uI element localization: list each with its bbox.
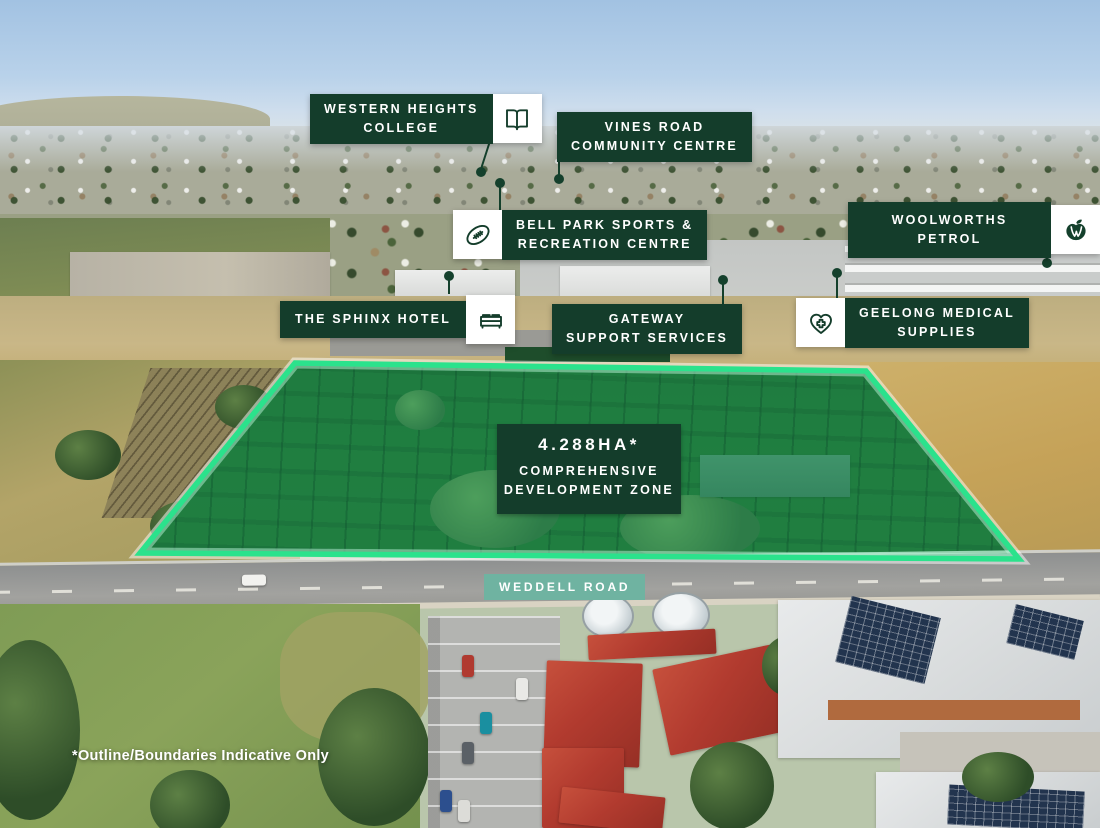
car <box>462 742 474 764</box>
callout-label: WOOLWORTHS PETROL <box>848 202 1051 258</box>
callout-bell-park-sports-recreation-centre: BELL PARK SPORTS & RECREATION CENTRE <box>453 210 707 260</box>
callout-vines-road-community-centre: VINES ROAD COMMUNITY CENTRE <box>557 112 752 162</box>
tree <box>962 752 1034 802</box>
water-tank <box>582 594 634 638</box>
callout-label: GATEWAY SUPPORT SERVICES <box>552 304 742 354</box>
site-area-label: 4.288HA* COMPREHENSIVE DEVELOPMENT ZONE <box>497 424 681 514</box>
callout-western-heights-college: WESTERN HEIGHTS COLLEGE <box>310 94 542 144</box>
car <box>516 678 528 700</box>
site-area-value: 4.288HA* <box>503 435 675 455</box>
tree <box>318 688 430 826</box>
tree <box>690 742 774 828</box>
site-shed-roof <box>700 455 850 497</box>
football-icon <box>453 210 502 259</box>
aerial-property-marketing-image: WESTERN HEIGHTS COLLEGE VINES ROAD COMMU… <box>0 0 1100 828</box>
callout-label: THE SPHINX HOTEL <box>280 301 466 338</box>
callout-woolworths-petrol: WOOLWORTHS PETROL <box>848 202 1100 258</box>
callout-label: VINES ROAD COMMUNITY CENTRE <box>557 112 752 162</box>
callout-label: BELL PARK SPORTS & RECREATION CENTRE <box>502 210 707 260</box>
bed-icon <box>466 295 515 344</box>
site-zone-name: COMPREHENSIVE DEVELOPMENT ZONE <box>503 462 675 501</box>
heart-medical-icon <box>796 298 845 347</box>
car <box>242 574 266 585</box>
tree <box>395 390 445 430</box>
car <box>458 800 470 822</box>
hotel-building <box>70 252 330 298</box>
callout-geelong-medical-supplies: GEELONG MEDICAL SUPPLIES <box>796 298 1029 348</box>
car <box>440 790 452 812</box>
callout-the-sphinx-hotel: THE SPHINX HOTEL <box>280 295 515 344</box>
book-icon <box>493 94 542 143</box>
building-wall <box>828 700 1080 720</box>
boundaries-disclaimer: *Outline/Boundaries Indicative Only <box>72 748 329 764</box>
car <box>480 712 492 734</box>
callout-label: GEELONG MEDICAL SUPPLIES <box>845 298 1029 348</box>
road-name-label: WEDDELL ROAD <box>484 574 645 600</box>
callout-label: WESTERN HEIGHTS COLLEGE <box>310 94 493 144</box>
woolworths-logo-icon <box>1051 205 1100 254</box>
red-roof-building <box>587 629 716 661</box>
callout-gateway-support-services: GATEWAY SUPPORT SERVICES <box>552 304 742 354</box>
tree <box>55 430 121 480</box>
car <box>462 655 474 677</box>
horizon-haze <box>0 126 1100 172</box>
red-roof-building <box>558 787 665 828</box>
